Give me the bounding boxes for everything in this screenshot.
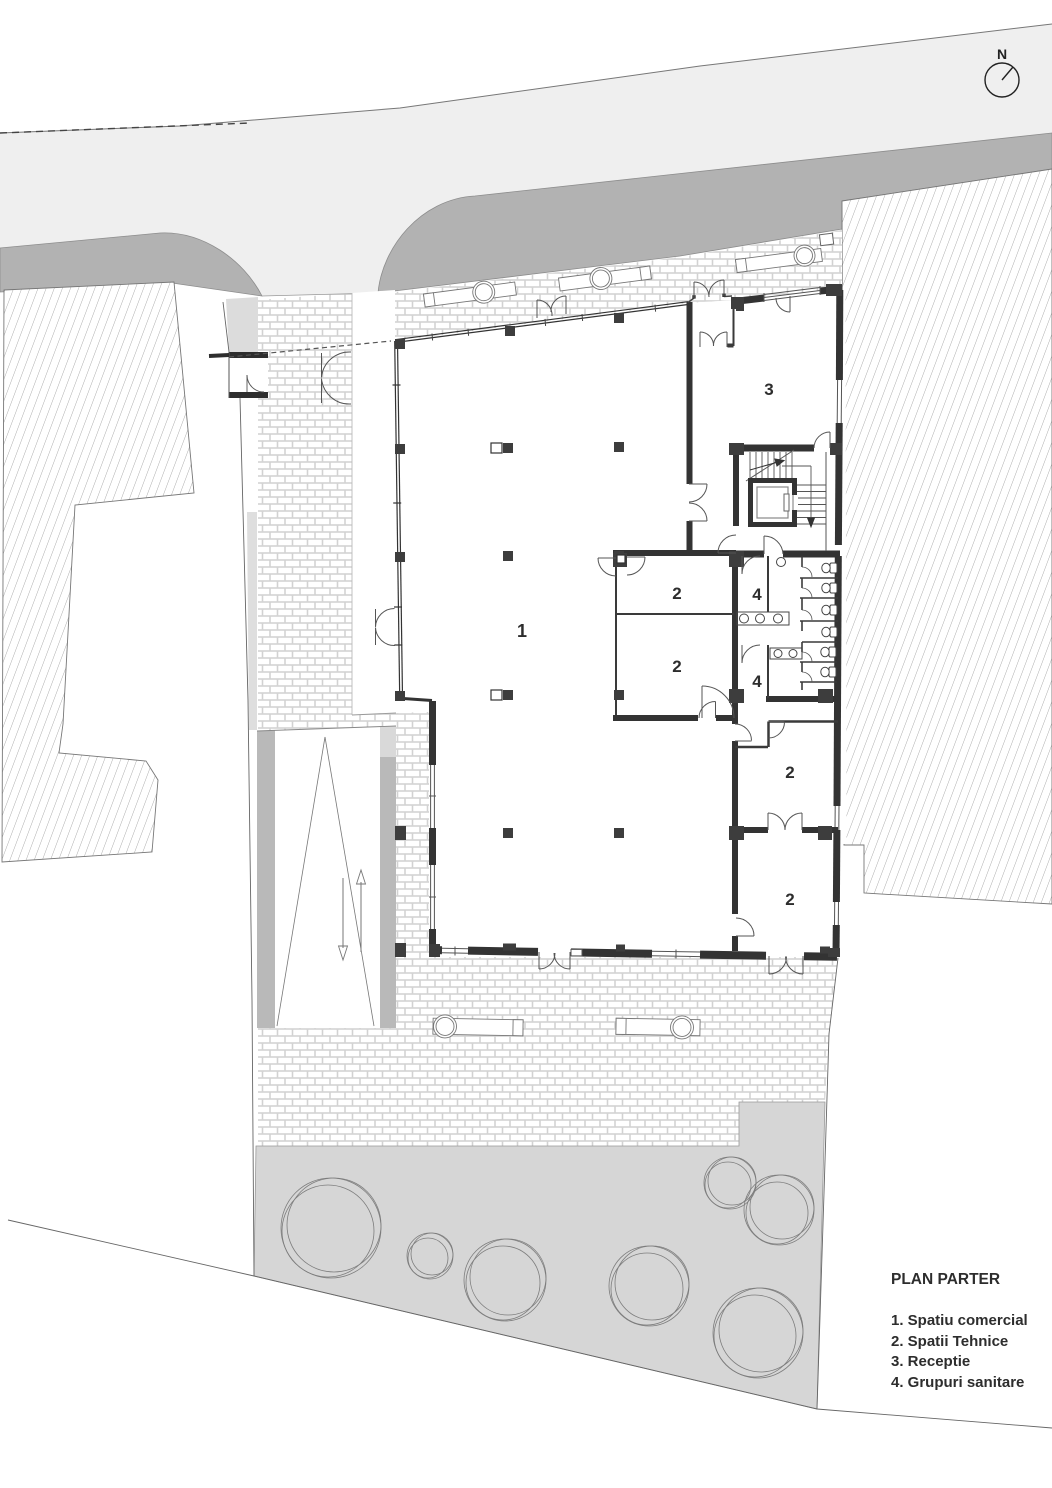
svg-text:2: 2 (785, 763, 794, 782)
svg-text:4. Grupuri sanitare: 4. Grupuri sanitare (891, 1374, 1024, 1391)
svg-text:2. Spatii Tehnice: 2. Spatii Tehnice (891, 1333, 1008, 1350)
svg-text:2: 2 (672, 657, 681, 676)
svg-text:4: 4 (752, 672, 762, 691)
svg-text:3: 3 (764, 380, 773, 399)
svg-text:2: 2 (785, 890, 794, 909)
svg-text:1. Spatiu comercial: 1. Spatiu comercial (891, 1312, 1028, 1329)
svg-text:PLAN PARTER: PLAN PARTER (891, 1271, 1000, 1288)
svg-text:4: 4 (752, 585, 762, 604)
svg-text:N: N (997, 46, 1007, 62)
svg-text:1: 1 (517, 621, 527, 641)
svg-text:3. Receptie: 3. Receptie (891, 1353, 970, 1370)
svg-text:2: 2 (672, 584, 681, 603)
